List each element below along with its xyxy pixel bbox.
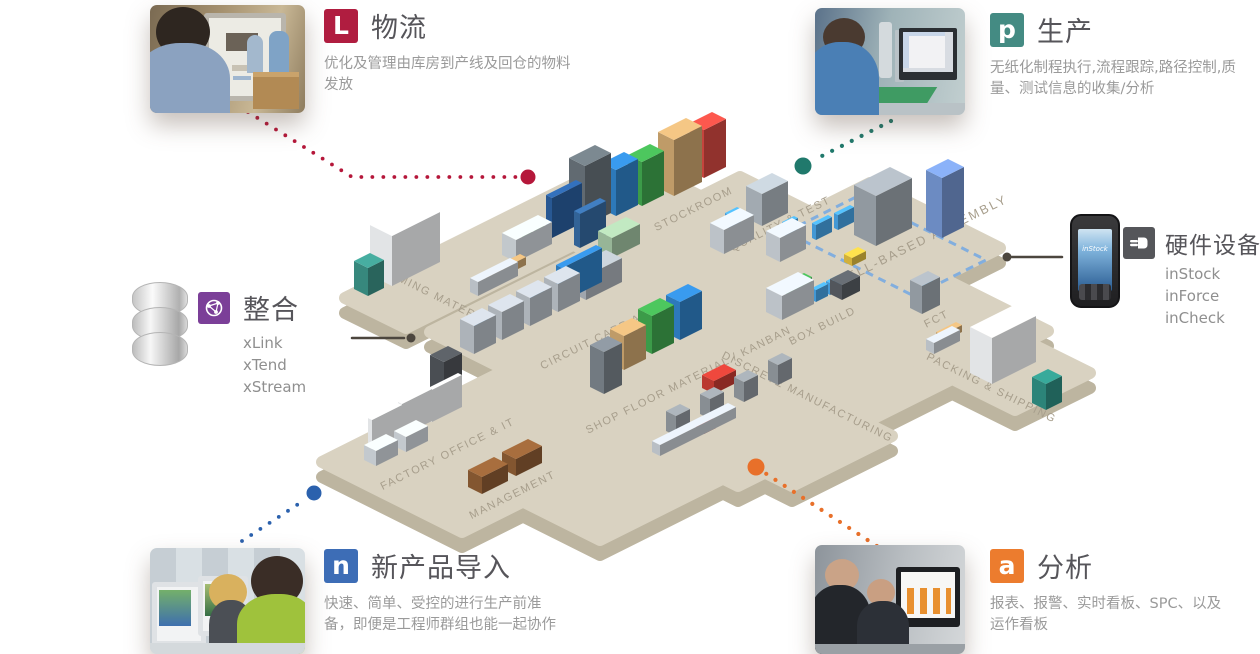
- product-xlink: xLink: [243, 332, 348, 354]
- integration-title: 整合: [243, 288, 299, 327]
- callout-npi: n 新产品导入 快速、简单、受控的进行生产前准 备，即便是工程师群组也能一起协作: [324, 546, 606, 635]
- person-shape: [150, 43, 230, 113]
- npi-description: 快速、简单、受控的进行生产前准 备，即便是工程师群组也能一起协作: [324, 594, 606, 635]
- callout-production: p 生产 无纸化制程执行,流程跟踪,路径控制,质 量、测试信息的收集/分析: [990, 10, 1260, 99]
- bar-chart-shape: [907, 588, 951, 614]
- keyboard-shape: [150, 643, 305, 654]
- logistics-icon-letter: L: [333, 13, 349, 38]
- device-keypad: [1079, 284, 1111, 300]
- hardware-title: 硬件设备: [1165, 226, 1260, 260]
- photo-production-lab: [815, 8, 965, 115]
- microscope-shape: [879, 22, 892, 78]
- analytics-description: 报表、报警、实时看板、SPC、以及 运作看板: [990, 594, 1254, 635]
- production-description: 无纸化制程执行,流程跟踪,路径控制,质 量、测试信息的收集/分析: [990, 58, 1260, 99]
- npi-dotted-line: [242, 499, 306, 541]
- person-shape: [815, 42, 879, 115]
- plug-icon: [1123, 227, 1155, 259]
- production-icon: p: [990, 13, 1024, 47]
- integration-product-list: xLink xTend xStream: [243, 332, 348, 399]
- worker-shape: [269, 31, 289, 75]
- callout-hardware: 硬件设备 inStock inForce inCheck: [1123, 226, 1259, 330]
- factory-software-diagram: STOCKROOM QUALITY & TEST CELL-BASED ASSE…: [0, 0, 1260, 654]
- photo-analytics-review: [815, 545, 965, 654]
- logistics-endpoint-dot: [521, 170, 536, 185]
- product-xtend: xTend: [243, 354, 348, 376]
- analytics-endpoint-dot: [748, 459, 765, 476]
- product-instock: inStock: [1165, 263, 1259, 285]
- hardware-product-list: inStock inForce inCheck: [1165, 263, 1259, 330]
- analytics-icon-letter: a: [999, 553, 1016, 578]
- logistics-description: 优化及管理由库房到产线及回仓的物料 发放: [324, 54, 596, 95]
- npi-icon: n: [324, 549, 358, 583]
- handheld-scanner-device: inStock: [1070, 214, 1120, 308]
- logistics-title: 物流: [371, 6, 427, 45]
- screen-content-shape: [903, 32, 953, 72]
- logistics-dotted-line: [248, 112, 518, 177]
- product-inforce: inForce: [1165, 285, 1259, 307]
- callout-logistics: L 物流 优化及管理由库房到产线及回仓的物料 发放: [324, 6, 596, 95]
- integration-endpoint-dot: [407, 334, 416, 343]
- photo-logistics-warehouse: [150, 5, 305, 113]
- carton-shape: [253, 72, 299, 109]
- npi-endpoint-dot: [307, 486, 322, 501]
- production-endpoint-dot: [795, 158, 812, 175]
- hardware-endpoint-dot: [1003, 253, 1012, 262]
- callout-analytics: a 分析 报表、报警、实时看板、SPC、以及 运作看板: [990, 546, 1254, 635]
- npi-title: 新产品导入: [371, 546, 511, 585]
- photo-npi-office: [150, 548, 305, 654]
- product-xstream: xStream: [243, 376, 348, 398]
- logistics-icon: L: [324, 9, 358, 43]
- callout-integration: 整合 xLink xTend xStream: [198, 288, 348, 399]
- npi-icon-letter: n: [332, 553, 350, 578]
- network-globe-icon: [198, 292, 230, 324]
- database-icon: [132, 282, 188, 362]
- analytics-title: 分析: [1037, 546, 1093, 585]
- production-dotted-line: [814, 121, 891, 160]
- product-incheck: inCheck: [1165, 307, 1259, 329]
- production-icon-letter: p: [998, 17, 1016, 42]
- desk-shape: [815, 644, 965, 654]
- device-screen: inStock: [1078, 229, 1112, 291]
- analytics-icon: a: [990, 549, 1024, 583]
- worker-shape: [247, 35, 263, 73]
- production-title: 生产: [1037, 10, 1093, 49]
- screen-content-shape: [159, 590, 191, 626]
